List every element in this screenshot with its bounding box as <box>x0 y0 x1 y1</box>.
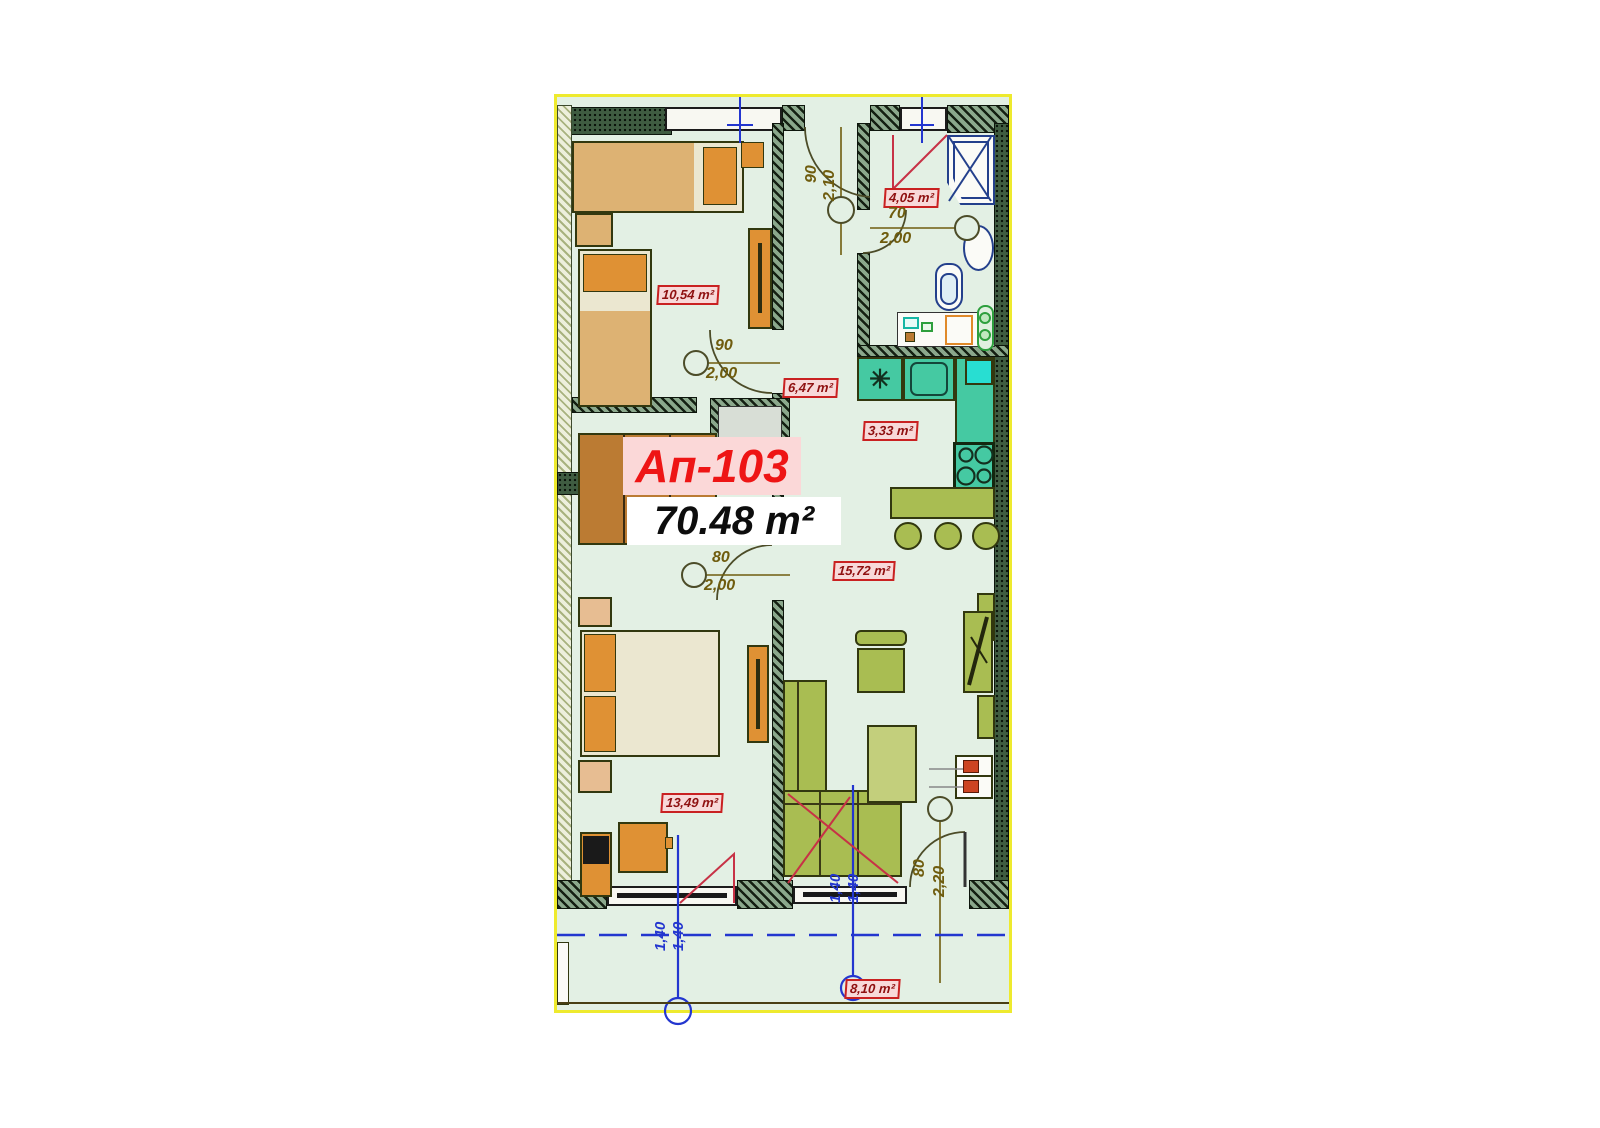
sofa-cushion-div1 <box>819 792 821 875</box>
wall-entrance-left-jamb <box>782 105 805 131</box>
bed-single-1-blanket <box>574 143 694 211</box>
kitchen-corner-sink <box>965 359 993 385</box>
bar-stool-1 <box>894 522 922 550</box>
tv-shelf-bottom <box>977 695 995 739</box>
area-label-bedroom2: 13,49 m² <box>660 793 723 813</box>
area-label-kitchen: 3,33 m² <box>862 421 918 441</box>
tv-stand <box>963 611 993 693</box>
axis-dim-b2: 1,40 <box>846 845 862 903</box>
bed-double-pillow-2 <box>584 696 616 752</box>
bed-single-2-pillow <box>583 254 647 292</box>
bed-single-2-blanket <box>580 311 650 405</box>
bar-stool-2 <box>934 522 962 550</box>
cabinet-item-2 <box>963 780 979 793</box>
wall-entrance-right-jamb <box>870 105 900 131</box>
fridge-glyph: ✳ <box>869 364 891 395</box>
dim-bedroom2-height: 2,00 <box>704 577 735 595</box>
axis-dim-a2: 1,40 <box>671 893 687 951</box>
nightstand-bedroom1-top <box>741 142 764 168</box>
wardrobe-bedroom1-handle <box>758 243 762 313</box>
bed-double-pillow-1 <box>584 634 616 692</box>
fridge-icon: ✳ <box>857 357 903 401</box>
nightstand-master-top <box>578 597 612 627</box>
dim-entrance-width: 90 <box>803 139 821 183</box>
area-label-terrace: 8,10 m² <box>844 979 900 999</box>
wall-bedroom1-hall <box>772 123 784 330</box>
axis-dim-b1: 1,40 <box>828 845 844 903</box>
wall-top-insulated <box>557 107 672 135</box>
wall-right-exterior <box>994 123 1009 909</box>
area-label-hallway: 6,47 m² <box>782 378 838 398</box>
sofa-cushion-line <box>785 803 900 805</box>
cabinet-item-1 <box>963 760 979 773</box>
counter-item-teal <box>903 317 919 329</box>
wardrobe-master-handle <box>756 659 760 729</box>
terrace-side-pier <box>557 942 569 1005</box>
nightstand-master-bottom <box>578 760 612 793</box>
coffee-table <box>867 725 917 803</box>
bed-single-1-pillow <box>703 147 737 205</box>
bathroom-sink <box>963 225 994 271</box>
dim-bedroom2-width: 80 <box>712 549 730 567</box>
dim-terrace-width: 80 <box>911 835 929 877</box>
wall-bathroom-left-lower <box>857 253 870 347</box>
door-tag-bedroom1 <box>684 351 708 375</box>
counter-item-green <box>921 322 933 332</box>
sofa-vertical <box>783 680 827 797</box>
bar-counter <box>890 487 995 519</box>
axis-dim-a1: 1,40 <box>653 893 669 951</box>
area-label-bedroom1: 10,54 m² <box>656 285 719 305</box>
total-area-label: 70.48 m² <box>627 497 841 545</box>
stove <box>953 442 995 491</box>
floor-plan: ✳ <box>557 97 1009 1010</box>
bathroom-red-mark-d <box>893 135 947 189</box>
sofa-back-line <box>797 682 799 795</box>
kitchen-sink-basin <box>910 362 948 396</box>
armchair-seat <box>857 648 905 693</box>
door-tag-bedroom2 <box>682 563 706 587</box>
bar-stool-3 <box>972 522 1000 550</box>
dim-bedroom1-width: 90 <box>715 337 733 355</box>
dim-bathroom-height: 2,00 <box>880 230 911 248</box>
washing-machine <box>945 315 973 345</box>
door-tag-terrace <box>928 797 952 821</box>
counter-item-brown <box>905 332 915 342</box>
window-bedroom1-top <box>665 107 782 131</box>
axis-bubble-1 <box>665 998 691 1024</box>
dim-bedroom1-height: 2,00 <box>706 365 737 383</box>
window-bathroom-top <box>900 107 947 131</box>
dim-entrance-height: 2,10 <box>821 137 839 201</box>
hall-cabinet-shelf <box>957 775 991 777</box>
wall-bathroom-left-upper <box>857 123 870 210</box>
desk-chair-armrest <box>665 837 673 849</box>
wall-bottom-right-corner <box>969 880 1009 909</box>
area-label-living: 15,72 m² <box>832 561 895 581</box>
nightstand-bedroom1 <box>575 213 613 247</box>
dim-terrace-height: 2,20 <box>931 835 949 897</box>
dim-bathroom-width: 70 <box>888 205 906 223</box>
shower-cabin-inner <box>953 141 989 199</box>
desk-chair <box>618 822 668 873</box>
boiler <box>977 305 994 351</box>
wall-bottom-pier <box>737 880 793 909</box>
armchair-back <box>855 630 907 646</box>
toilet-bowl <box>940 273 958 305</box>
wall-left-exterior <box>557 105 572 909</box>
page: ✳ <box>0 0 1600 1128</box>
desk-monitor <box>583 836 609 864</box>
apartment-number-label: Ап-103 <box>623 437 801 495</box>
